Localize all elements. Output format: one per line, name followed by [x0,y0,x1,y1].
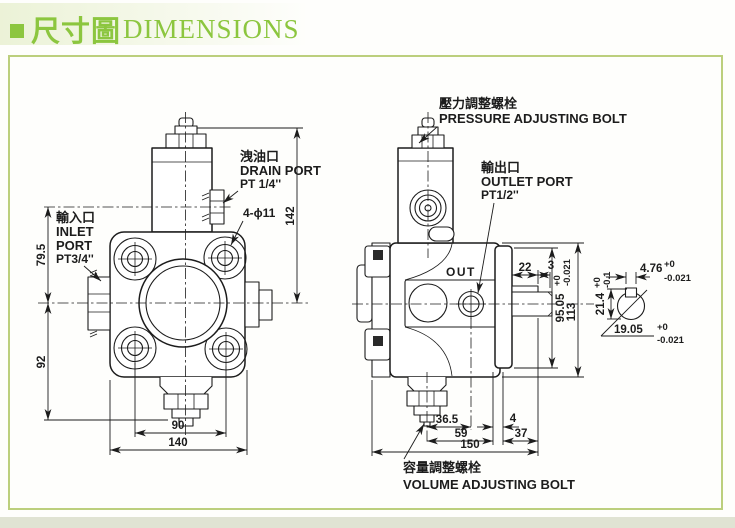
page: 尺寸圖 DIMENSIONS [0,0,735,528]
mounting-flange [495,246,512,368]
pressure-bolt-label-en: PRESSURE ADJUSTING BOLT [439,111,627,126]
svg-text:-0.021: -0.021 [664,273,692,284]
inlet-port-size: PT3/4'' [56,252,94,266]
dim-37: 37 [515,428,528,440]
dimensions-drawing: 142 79.5 92 90 140 4-ϕ11 洩油口 DRAIN PORT … [0,0,735,528]
volume-bolt-label-en: VOLUME ADJUSTING BOLT [403,477,575,492]
svg-text:21.4: 21.4 [595,292,607,315]
dim-19-05: 19.05 [614,324,643,336]
svg-text:-0.1: -0.1 [602,271,613,288]
dim-21-4: 21.4 +0 -0.1 [592,271,613,315]
dim-113: 113 [566,303,578,322]
front-tower [152,148,212,232]
shaft-key [512,286,538,292]
dim-79-5: 79.5 [36,243,48,266]
dim-3: 3 [548,260,554,272]
outlet-port-label-en: OUTLET PORT [481,174,573,189]
dim-4: 4 [510,413,517,425]
inlet-boss [88,270,110,337]
front-top-bolt [166,118,206,148]
svg-text:-0.021: -0.021 [657,335,685,346]
dim-142: 142 [285,206,297,225]
drain-port-size: PT 1/4'' [240,177,281,191]
dim-140: 140 [168,437,187,449]
bolt-holes-note: 4-ϕ11 [243,206,276,220]
shaft-detail: 19.05 +0 -0.021 21.4 +0 -0.1 4.76 +0 -0.… [592,259,692,346]
dim-22: 22 [519,262,532,274]
drain-port-label-zh: 洩油口 [240,149,279,164]
key-section [626,288,637,297]
bottom-strip [0,517,735,528]
out-marking: OUT [446,265,476,279]
outlet-port-size: PT1/2'' [481,188,519,202]
inlet-port-label-en1: INLET [56,224,94,239]
dim-150: 150 [460,439,479,451]
pressure-bolt-label-zh: 壓力調整螺栓 [439,96,517,111]
dim-4-76: 4.76 [640,263,662,275]
outlet-port-label-zh: 輸出口 [481,160,520,175]
front-bottom-bolt [160,377,212,426]
drain-port-label-en: DRAIN PORT [240,163,321,178]
dim-92: 92 [36,356,48,369]
svg-text:+0: +0 [657,322,668,333]
svg-text:+0: +0 [664,259,675,270]
inlet-port-label-en2: PORT [56,238,92,253]
svg-text:-0.021: -0.021 [562,258,573,286]
inlet-port-label-zh: 輸入口 [56,210,95,225]
volume-bolt-label-zh: 容量調整螺栓 [402,460,481,475]
dim-90: 90 [172,420,185,432]
dim-36-5: 36.5 [436,414,459,426]
